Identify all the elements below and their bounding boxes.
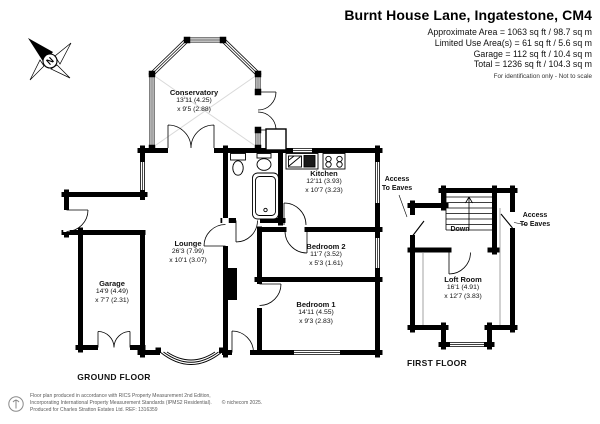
bathroom-fixtures [231,154,279,220]
chimney-breast [223,268,237,300]
area-line-approximate: Approximate Area = 1063 sq ft / 98.7 sq … [344,27,592,38]
chimney-block [266,129,286,150]
first-floor-label: FIRST FLOOR [407,358,467,368]
title-block: Burnt House Lane, Ingatestone, CM4 Appro… [344,7,592,80]
ground-floor-label: GROUND FLOOR [77,372,150,382]
bathtub-icon [253,173,279,219]
room-label-loft: Loft Room 16'1 (4.91) x 12'7 (3.83) [444,275,482,301]
room-label-garage: Garage 14'9 (4.49) x 7'7 (2.31) [95,279,129,305]
toilet-icon [231,154,246,176]
area-summary: Approximate Area = 1063 sq ft / 98.7 sq … [344,27,592,70]
room-label-lounge: Lounge 26'3 (7.99) x 10'1 (3.07) [169,239,207,265]
area-line-limited-use: Limited Use Area(s) = 61 sq ft / 5.6 sq … [344,38,592,49]
compass-north-icon: N [28,38,71,80]
footer-line-1: Floor plan produced in accordance with R… [30,393,262,400]
page-title: Burnt House Lane, Ingatestone, CM4 [344,7,592,23]
room-label-kitchen: Kitchen 12'11 (3.93) x 10'7 (3.23) [305,169,343,195]
stove-icon [323,154,345,170]
footer-line-2: Incorporating International Property Mea… [30,400,262,407]
nichecom-logo [9,397,23,411]
room-label-conservatory: Conservatory 13'11 (4.25) x 9'5 (2.88) [170,88,218,114]
floorplan-page: N Burnt House Lane, Ingatestone, CM4 App… [0,0,600,424]
footer-line-3: Produced for Charles Stratton Estates Lt… [30,407,262,414]
footer-disclaimer: Floor plan produced in accordance with R… [30,393,262,414]
room-label-bedroom2: Bedroom 2 11'7 (3.52) x 5'3 (1.61) [306,242,345,268]
stairs-down-label: Down [450,226,469,235]
staircase [446,193,492,230]
area-line-garage: Garage = 112 sq ft / 10.4 sq m [344,49,592,60]
footer-copyright: © nichecom 2025. [222,400,262,406]
footer-line-2-text: Incorporating International Property Mea… [30,400,212,406]
access-eaves-label-left: Access To Eaves [382,176,412,194]
sink-unit-icon [286,154,318,170]
room-label-bedroom1: Bedroom 1 14'11 (4.55) x 9'3 (2.83) [296,300,335,326]
disclaimer-text: For identification only - Not to scale [344,73,592,80]
first-floor-walls [410,188,515,347]
access-eaves-label-right: Access To Eaves [520,212,550,230]
area-line-total: Total = 1236 sq ft / 104.3 sq m [344,59,592,70]
basin-icon [257,154,271,171]
kitchen-fixtures [286,154,345,170]
label-leader-lines [399,195,527,225]
